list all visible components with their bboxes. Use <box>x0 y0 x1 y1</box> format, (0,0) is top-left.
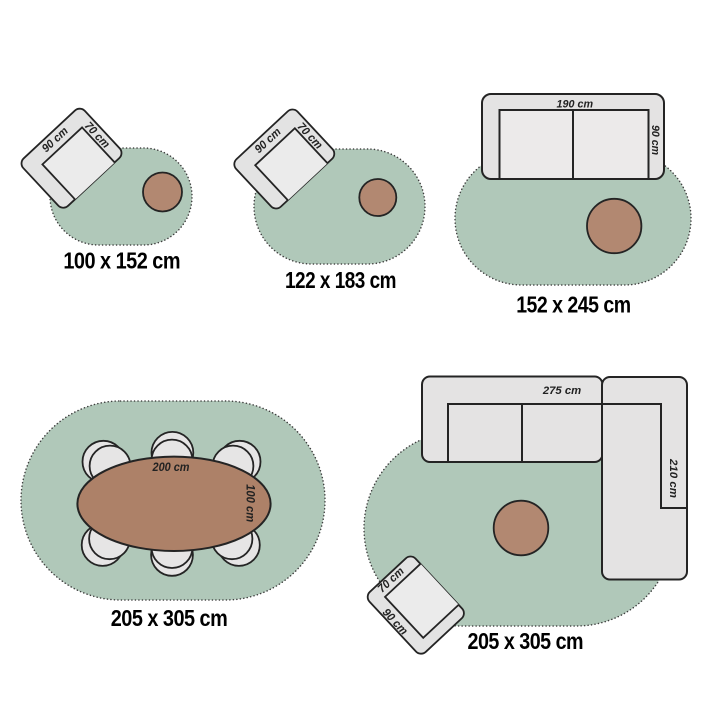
svg-text:275 cm: 275 cm <box>542 385 582 397</box>
svg-text:210 cm: 210 cm <box>667 458 679 498</box>
svg-text:205 x 305 cm: 205 x 305 cm <box>111 605 228 631</box>
svg-text:190 cm: 190 cm <box>557 98 594 110</box>
svg-text:90 cm: 90 cm <box>649 125 661 155</box>
svg-text:100 cm: 100 cm <box>243 484 255 522</box>
svg-text:205 x 305 cm: 205 x 305 cm <box>468 628 584 654</box>
svg-text:122 x 183 cm: 122 x 183 cm <box>285 267 396 293</box>
svg-text:200 cm: 200 cm <box>152 462 190 474</box>
svg-text:152 x 245 cm: 152 x 245 cm <box>516 292 631 318</box>
svg-text:100 x 152 cm: 100 x 152 cm <box>63 248 180 274</box>
